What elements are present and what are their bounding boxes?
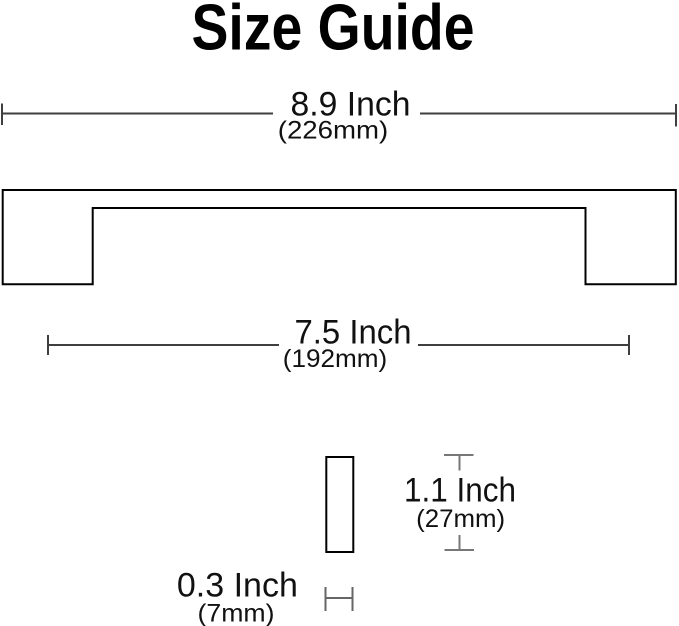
svg-text:(226mm): (226mm): [278, 117, 389, 145]
svg-text:Size Guide: Size Guide: [192, 0, 475, 64]
svg-text:1.1 Inch: 1.1 Inch: [404, 472, 516, 510]
svg-text:(192mm): (192mm): [283, 345, 388, 373]
svg-text:(27mm): (27mm): [416, 505, 505, 533]
svg-text:(7mm): (7mm): [198, 600, 275, 626]
